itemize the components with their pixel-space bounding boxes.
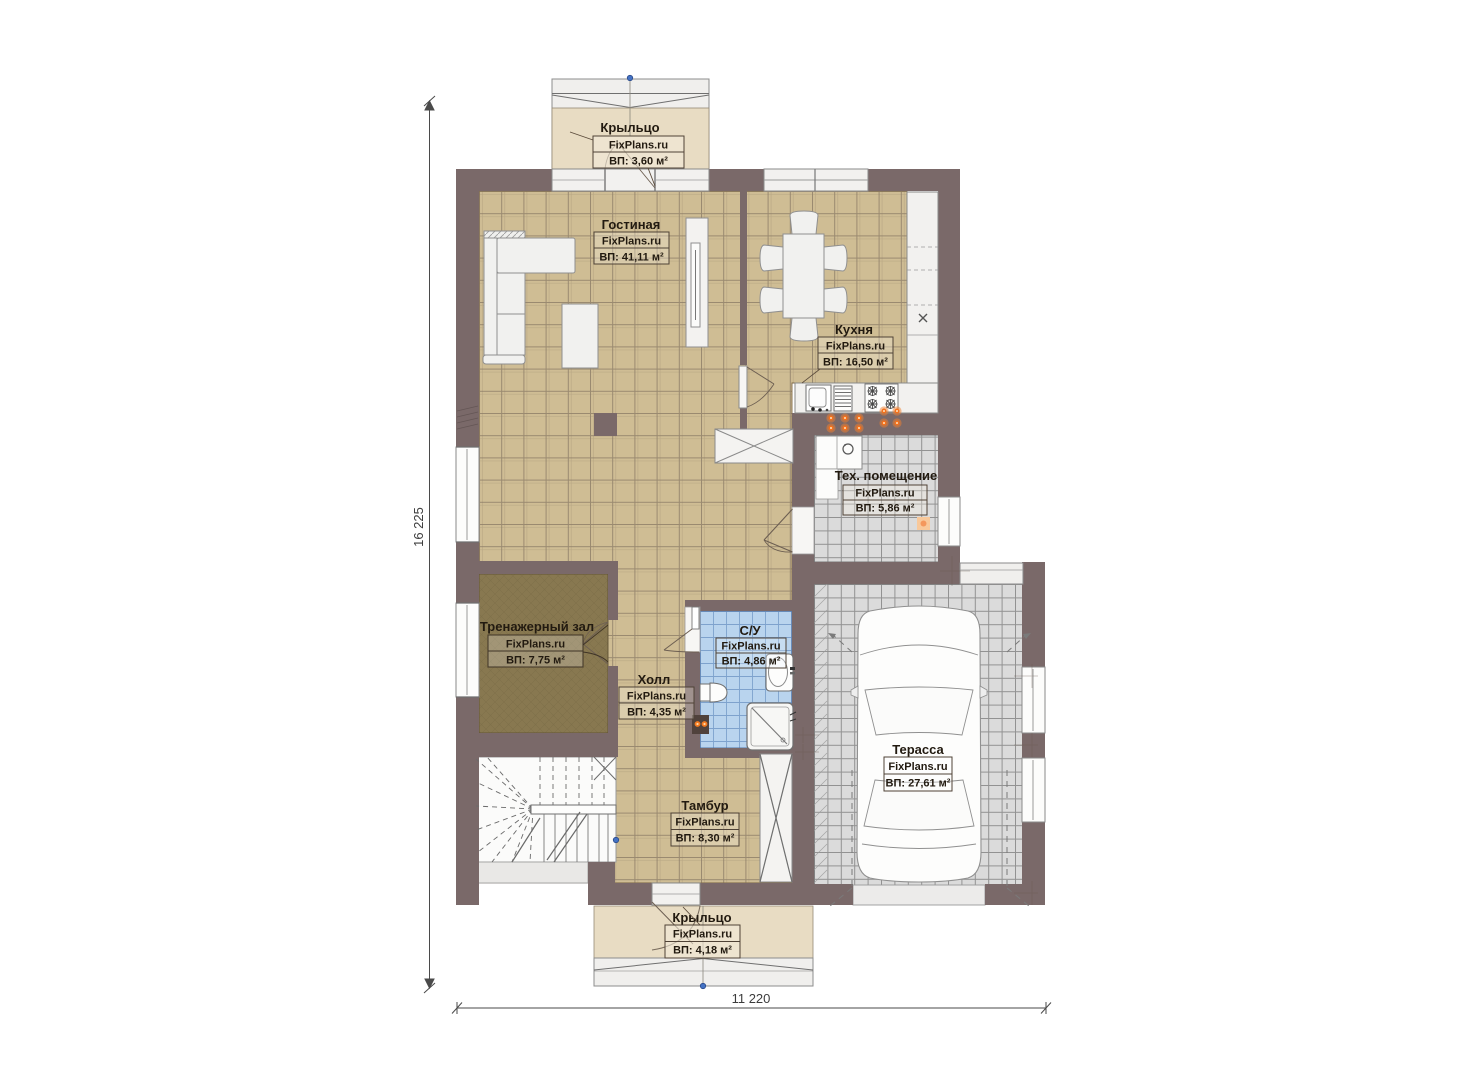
svg-text:С/У: С/У xyxy=(739,623,761,638)
svg-text:FixPlans.ru: FixPlans.ru xyxy=(721,641,780,653)
svg-text:Тренажерный зал: Тренажерный зал xyxy=(480,619,594,634)
svg-text:11 220: 11 220 xyxy=(732,991,771,1006)
svg-text:ВП: 5,86 м²: ВП: 5,86 м² xyxy=(856,503,915,515)
svg-text:Крыльцо: Крыльцо xyxy=(672,910,731,925)
svg-text:ВП: 16,50 м²: ВП: 16,50 м² xyxy=(823,357,888,369)
svg-text:FixPlans.ru: FixPlans.ru xyxy=(826,341,885,353)
svg-text:FixPlans.ru: FixPlans.ru xyxy=(609,140,668,152)
svg-text:Кухня: Кухня xyxy=(835,322,873,337)
svg-text:Терасса: Терасса xyxy=(892,742,944,757)
svg-text:FixPlans.ru: FixPlans.ru xyxy=(602,236,661,248)
svg-text:Крыльцо: Крыльцо xyxy=(600,120,659,135)
svg-text:ВП: 4,35 м²: ВП: 4,35 м² xyxy=(627,707,686,719)
svg-text:FixPlans.ru: FixPlans.ru xyxy=(506,639,565,651)
svg-text:Тех. помещение: Тех. помещение xyxy=(835,468,938,483)
svg-text:ВП: 7,75 м²: ВП: 7,75 м² xyxy=(506,655,565,667)
svg-text:FixPlans.ru: FixPlans.ru xyxy=(627,691,686,703)
svg-text:Гостиная: Гостиная xyxy=(602,217,661,232)
svg-text:Холл: Холл xyxy=(638,672,671,687)
svg-text:FixPlans.ru: FixPlans.ru xyxy=(855,488,914,500)
svg-text:ВП: 4,86 м²: ВП: 4,86 м² xyxy=(722,656,781,668)
svg-text:ВП: 8,30 м²: ВП: 8,30 м² xyxy=(676,833,735,845)
svg-text:FixPlans.ru: FixPlans.ru xyxy=(673,929,732,941)
svg-text:FixPlans.ru: FixPlans.ru xyxy=(675,817,734,829)
svg-text:ВП: 3,60 м²: ВП: 3,60 м² xyxy=(609,156,668,168)
svg-text:16 225: 16 225 xyxy=(411,507,426,547)
svg-text:Тамбур: Тамбур xyxy=(681,798,728,813)
svg-text:ВП: 41,11 м²: ВП: 41,11 м² xyxy=(599,252,664,264)
svg-text:ВП: 27,61 м²: ВП: 27,61 м² xyxy=(886,778,951,790)
svg-text:FixPlans.ru: FixPlans.ru xyxy=(888,761,947,773)
svg-text:ВП: 4,18 м²: ВП: 4,18 м² xyxy=(673,945,732,957)
